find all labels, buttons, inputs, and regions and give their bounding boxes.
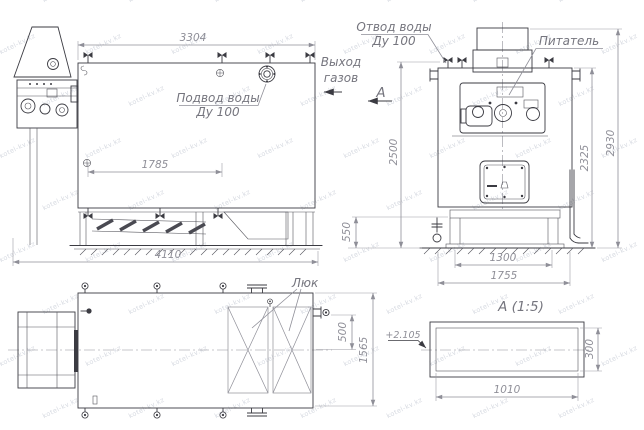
dim-2930-text: 2930 [605,129,617,156]
drain-pipe-right [570,170,588,243]
dim-2325: 2325 [574,68,596,248]
gas-exit-label: Выход газов [321,55,361,92]
elevation-mark-text: +2.105 [385,330,420,341]
water-outlet-valve-left2 [458,57,467,68]
left-pipe-stub [430,69,438,81]
duct-outer [430,322,584,377]
water-supply-label-line2: Ду 100 [195,105,240,119]
bottom-valves-side [84,208,223,219]
gas-exit-label-line2: газов [324,71,358,85]
gas-exit-label-line1: Выход [321,55,361,69]
plan-valve-inner-top [268,299,273,307]
dim-500-text: 500 [337,322,349,342]
plan-left-fitting [81,308,92,313]
dim-3304-text: 3304 [180,32,207,44]
dim-550-text: 550 [341,222,353,242]
top-valves-side [84,52,315,63]
drawing-canvas: 3304 1785 4110 Подвод воды Ду 100 [0,0,644,430]
plan-valve-bottom-3 [220,408,226,418]
water-outlet-label-line2: Ду 100 [371,34,416,48]
hatch-label-text: Люк [291,276,319,290]
dim-550: 550 [341,217,448,248]
plan-valve-bottom-2 [154,408,160,418]
boiler-body-front [438,68,572,207]
dim-2500: 2500 [388,62,440,248]
dim-2325-text: 2325 [579,144,591,171]
dim-1785-text: 1785 [142,159,169,171]
section-a-view: А (1:5) +2.105 300 1010 [385,299,602,401]
dim-3304: 3304 [78,32,315,60]
level-gauge-icon [81,66,87,75]
feeder-side [14,27,78,245]
boiler-body-plan [78,293,313,408]
boiler-body-side [78,63,315,208]
plan-valve-top-2 [154,283,160,293]
section-title: А (1:5) [497,299,544,315]
door-latch-icon [501,182,508,188]
dim-1565-text: 1565 [358,336,370,363]
water-outlet-label-line1: Отвод воды [356,20,431,34]
plan-valve-top-1 [82,283,88,293]
grate-bars [92,219,206,234]
dim-4110: 4110 [13,238,318,266]
plan-valve-top-3 [220,283,226,293]
water-supply-flange [259,66,275,82]
drain-plug-icon [83,159,90,166]
dim-2500-text: 2500 [388,138,400,165]
front-view: Отвод воды Ду 100 Питатель Выход газов А [321,20,622,286]
plan-valve-bottom-1 [82,408,88,418]
front-base [420,170,595,254]
section-arrow: А [368,85,392,101]
section-arrow-letter: А [375,85,385,101]
dim-4110-text: 4110 [155,249,182,261]
feeder-label: Питатель [509,34,603,95]
water-supply-label: Подвод воды Ду 100 [176,84,266,119]
plan-flange-bottom [247,408,267,416]
feeder-front [452,83,548,136]
elevation-mark: +2.105 [385,330,426,348]
dim-1300-text: 1300 [490,252,517,264]
dim-1785: 1785 [88,159,222,177]
water-outlet-label: Отвод воды Ду 100 [356,20,446,63]
feeder-label-text: Питатель [539,34,599,48]
drain-valve-left [432,218,442,232]
dim-300-text: 300 [584,339,596,359]
water-outlet-valve-left [444,57,453,68]
hatch-label: Люк [252,276,319,331]
side-view: 3304 1785 4110 Подвод воды Ду 100 [13,27,322,266]
ash-pit [224,212,288,239]
duct-inner [436,328,578,371]
dim-2930: 2930 [530,29,622,248]
dim-300: 300 [580,328,602,371]
right-pipe-stub [572,69,580,81]
plan-view: Люк 500 1565 [8,276,377,418]
plan-flange-top [247,285,267,293]
vent-plug-icon [216,69,223,76]
dim-1010-text: 1010 [494,384,521,396]
plan-right-stub [313,307,329,318]
furnace-door [480,161,529,203]
dim-500: 500 [316,315,356,350]
water-outlet-valve-right [545,57,554,68]
water-supply-label-line1: Подвод воды [176,91,259,105]
dim-1755-text: 1755 [491,270,518,282]
drawing-page: kotel-kv.kzkotel-kv.kzkotel-kv.kzkotel-k… [0,0,644,430]
